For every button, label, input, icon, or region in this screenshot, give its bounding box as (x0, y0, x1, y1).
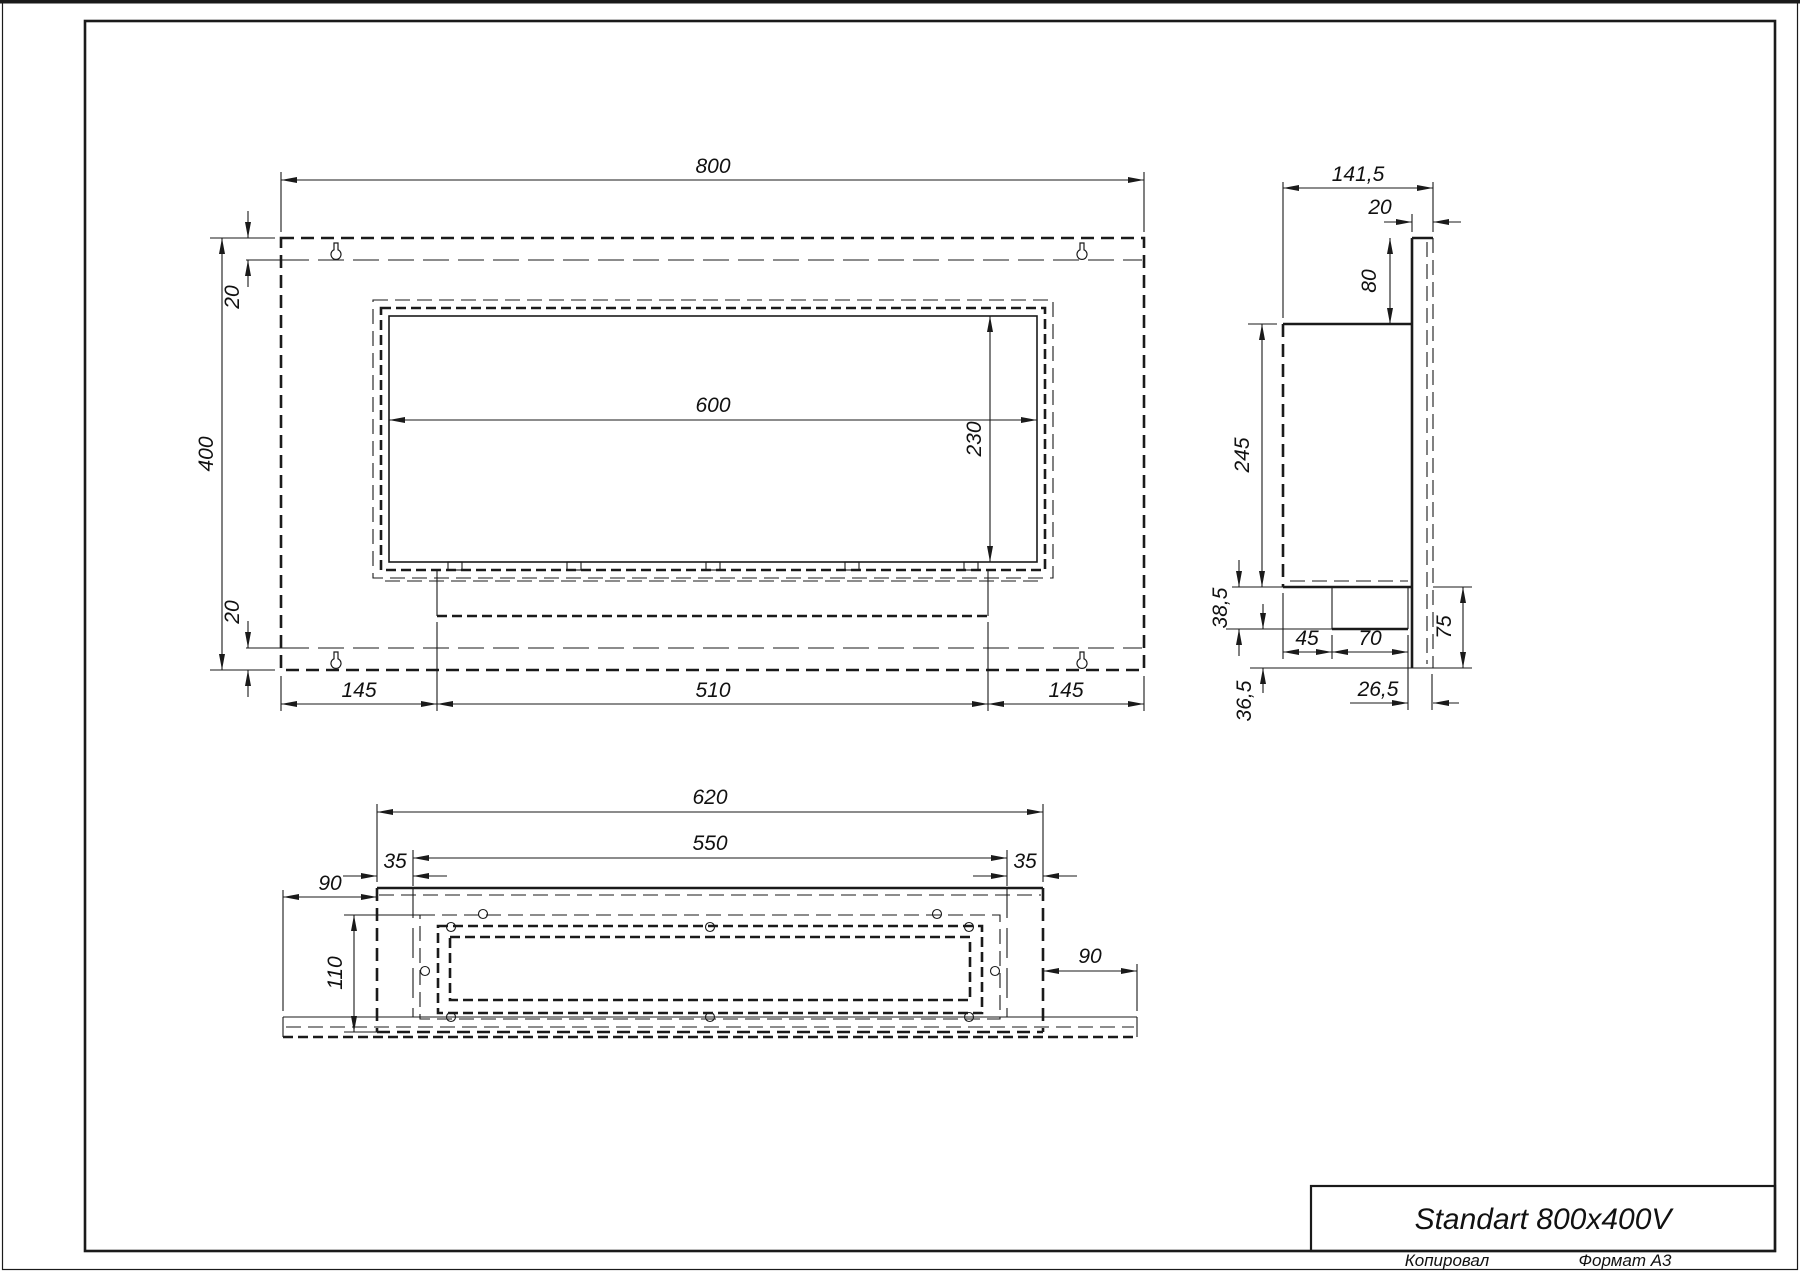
dim-tray-depth: 70 (1358, 627, 1382, 650)
dim-back-panel-top-height: 80 (1358, 269, 1381, 293)
front-opening (389, 316, 1037, 562)
technical-drawing-canvas: 800 400 20 20 600 230 145 510 145 (0, 0, 1800, 1273)
dim-left-flange: 90 (318, 872, 342, 895)
dim-burner-width: 510 (695, 679, 730, 702)
sheet-frame (0, 0, 1800, 1270)
dim-lower-back-height: 36,5 (1233, 680, 1256, 721)
dim-right-inset: 35 (1013, 850, 1037, 873)
screw-hole (479, 910, 488, 919)
dim-opening-height: 230 (963, 421, 986, 457)
sheet-outer-border (3, 3, 1798, 1270)
dim-back-bottom-height: 75 (1433, 615, 1456, 639)
dim-overall-width: 800 (695, 155, 730, 178)
format-label: Формат А3 (1578, 1251, 1672, 1270)
dim-fold-span: 550 (692, 832, 727, 855)
drawing-frame (85, 21, 1775, 1251)
front-opening-outer-contour (373, 300, 1053, 578)
front-outer-body (281, 238, 1144, 670)
screw-hole (991, 967, 1000, 976)
front-opening-hidden-contour (381, 308, 1045, 570)
dim-left-inset: 35 (383, 850, 407, 873)
copied-label: Копировал (1405, 1251, 1490, 1270)
dim-bottom-flange: 20 (221, 600, 244, 625)
dim-opening-depth: 110 (324, 956, 347, 990)
dim-top-flange: 20 (221, 285, 244, 310)
opening-inner-contour (450, 937, 970, 1000)
dim-tray-front-offset: 45 (1295, 627, 1319, 650)
title-block: Standart 800x400V Копировал Формат А3 (1311, 1186, 1775, 1270)
dim-tray-height: 38,5 (1209, 587, 1232, 628)
dim-opening-width: 600 (695, 394, 730, 417)
dim-tray-back-gap: 26,5 (1357, 678, 1399, 701)
screw-hole (933, 910, 942, 919)
dim-body-height: 245 (1231, 437, 1254, 473)
mounting-keyhole-icon (331, 243, 341, 259)
front-view: 800 400 20 20 600 230 145 510 145 (195, 155, 1144, 711)
mounting-keyhole-icon (331, 652, 341, 668)
part-name: Standart 800x400V (1415, 1203, 1675, 1236)
dim-back-panel-thickness: 20 (1367, 196, 1392, 219)
dim-bottom-body-width: 620 (692, 786, 727, 809)
mounting-keyhole-icon (1077, 243, 1087, 259)
dim-overall-depth: 141,5 (1332, 163, 1385, 186)
dim-overall-height: 400 (195, 436, 218, 471)
screw-hole (421, 967, 430, 976)
mounting-keyhole-icon (1077, 652, 1087, 668)
opening-outer-contour (420, 915, 1000, 1019)
dim-right-flange: 90 (1078, 945, 1102, 968)
dim-bottom-right-margin: 145 (1048, 679, 1083, 702)
bottom-view: 620 550 35 35 90 110 90 (283, 786, 1137, 1037)
side-view: 141,5 20 80 245 38,5 36,5 45 70 (1209, 163, 1472, 721)
dim-bottom-left-margin: 145 (341, 679, 376, 702)
drawing-sheet: 800 400 20 20 600 230 145 510 145 (0, 0, 1800, 1273)
